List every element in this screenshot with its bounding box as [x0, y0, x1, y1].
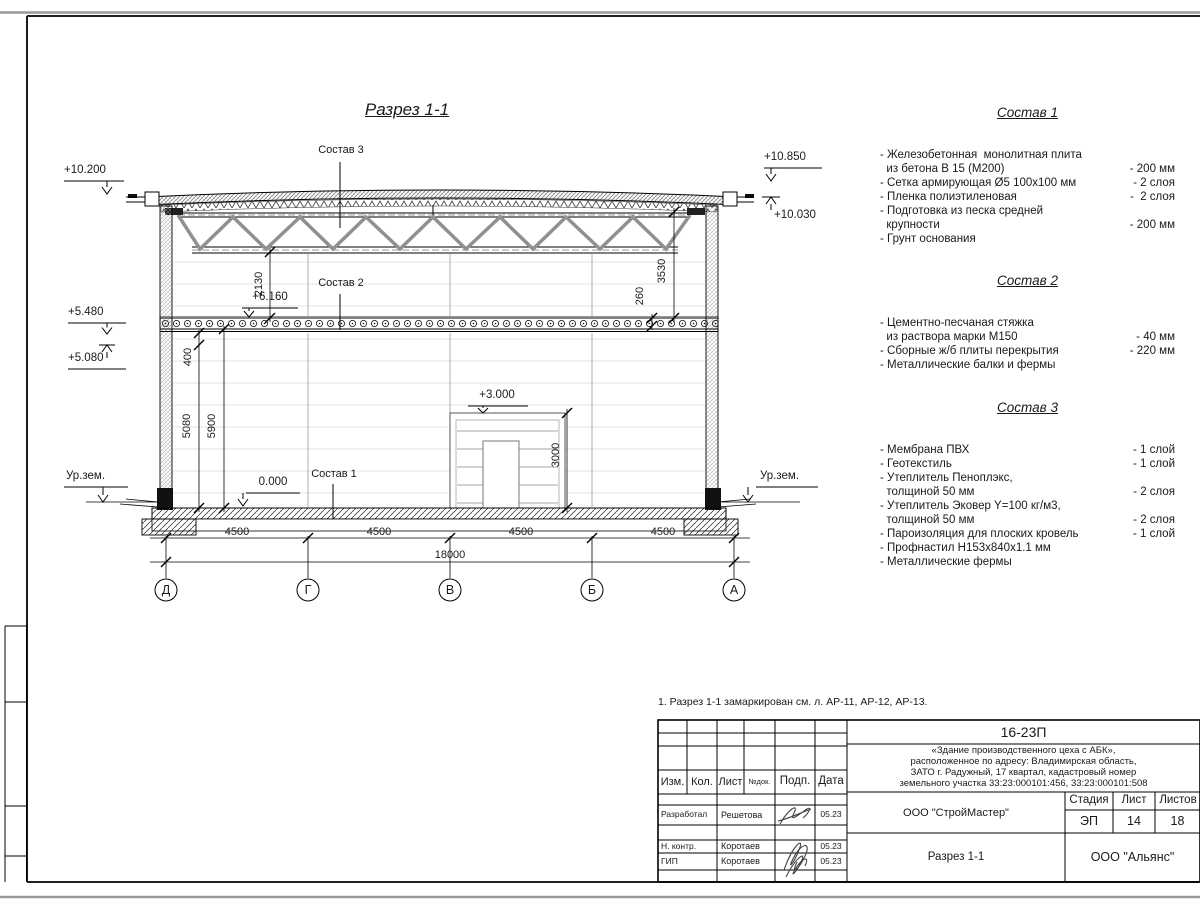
- header-ndok: №док.: [744, 770, 775, 794]
- composition-2-title: Состав 2: [880, 273, 1175, 288]
- drawing-sheet: Разрез 1-1 Состав 3 Состав 2 Состав 1 +1…: [0, 0, 1200, 900]
- composition-item: - Утеплитель Пеноплэкс, толщиной 50 мм -…: [880, 471, 1175, 499]
- axis-label-d: Д: [155, 583, 177, 597]
- row-role: Разработал: [661, 805, 715, 825]
- row-date: 05.23: [815, 805, 847, 825]
- view-title: Разрез 1-1: [327, 100, 487, 120]
- row-role: Н. контр.: [661, 840, 715, 853]
- elevation-slab: +6.160: [242, 291, 298, 303]
- sheet-number: 14: [1113, 810, 1155, 833]
- header-izm: Изм.: [658, 770, 687, 794]
- axis-label-v: В: [439, 583, 461, 597]
- composition-item: - Профнастил Н153х840х1.1 мм: [880, 541, 1175, 555]
- dim-5080: 5080: [181, 396, 193, 456]
- header-sheets-total: Листов: [1155, 792, 1200, 810]
- composition-section-3: Состав 3 - Мембрана ПВХ - 1 слой - Геоте…: [880, 400, 1175, 569]
- row-date: 05.23: [815, 853, 847, 870]
- header-sheet: Лист: [1113, 792, 1155, 810]
- ground-level-right-label: Ур.зем.: [760, 470, 799, 482]
- dim-bay-1: 4500: [207, 526, 267, 538]
- elevation-left-b: +5.080: [68, 352, 104, 364]
- dim-400: 400: [182, 327, 194, 387]
- composition-item: - Железобетонная монолитная плита из бет…: [880, 148, 1175, 176]
- sostav1-ref-label: Состав 1: [305, 468, 363, 480]
- elevation-right-a: +10.030: [774, 209, 816, 221]
- header-podp: Подп.: [775, 770, 815, 794]
- axis-label-a: А: [723, 583, 745, 597]
- ground-level-left-label: Ур.зем.: [66, 470, 105, 482]
- contractor-org: ООО "СтройМастер": [847, 794, 1065, 832]
- company-name: ООО "Альянс": [1065, 833, 1200, 882]
- composition-item: - Сборные ж/б плиты перекрытия - 220 мм: [880, 344, 1175, 358]
- dim-260: 260: [634, 266, 646, 326]
- elevation-right-top: +10.850: [764, 151, 806, 163]
- row-name: Коротаев: [721, 840, 773, 853]
- walls: [157, 206, 721, 510]
- project-description: «Здание производственного цеха с АБК», р…: [852, 745, 1195, 791]
- composition-item: - Утеплитель Эковер Y=100 кг/м3, толщино…: [880, 499, 1175, 527]
- composition-item: - Грунт основания: [880, 232, 1175, 246]
- roof-truss: [165, 205, 705, 253]
- elevation-zero: 0.000: [246, 476, 300, 488]
- composition-item: - Пленка полиэтиленовая - 2 слоя: [880, 190, 1175, 204]
- dim-bay-3: 4500: [491, 526, 551, 538]
- axis-label-g: Г: [297, 583, 319, 597]
- sostav3-ref-label: Состав 3: [312, 144, 370, 156]
- composition-item: - Подготовка из песка средней крупности …: [880, 204, 1175, 232]
- dim-2130: 2130: [253, 254, 265, 314]
- header-kol: Кол.: [687, 770, 717, 794]
- header-list: Лист: [717, 770, 744, 794]
- composition-section-2: Состав 2 - Цементно-песчаная стяжка из р…: [880, 273, 1175, 372]
- composition-3-title: Состав 3: [880, 400, 1175, 415]
- elevation-left-top: +10.200: [64, 164, 106, 176]
- sheets-total: 18: [1155, 810, 1200, 833]
- row-name: Решетова: [721, 805, 773, 825]
- composition-item: - Цементно-песчаная стяжка из раствора м…: [880, 316, 1175, 344]
- drawing-name: Разрез 1-1: [847, 833, 1065, 882]
- roof-slab: [126, 190, 754, 212]
- dim-5900: 5900: [206, 396, 218, 456]
- leader-lines: [333, 162, 340, 519]
- dim-3000: 3000: [550, 425, 562, 485]
- sectional-door: [450, 413, 565, 508]
- elevation-left-a: +5.480: [68, 306, 104, 318]
- dim-bay-4: 4500: [633, 526, 693, 538]
- side-stamp: [5, 626, 27, 882]
- row-role: ГИП: [661, 853, 715, 870]
- sheet-note: 1. Разрез 1-1 замаркирован см. л. АР-11,…: [658, 696, 927, 708]
- signatures: [778, 808, 811, 877]
- stage-value: ЭП: [1065, 810, 1113, 833]
- row-name: Коротаев: [721, 853, 773, 870]
- composition-1-title: Состав 1: [880, 105, 1175, 120]
- dim-3530: 3530: [656, 241, 668, 301]
- composition-item: - Пароизоляция для плоских кровель - 1 с…: [880, 527, 1175, 541]
- composition-item: - Мембрана ПВХ - 1 слой: [880, 443, 1175, 457]
- composition-item: - Металлические фермы: [880, 555, 1175, 569]
- row-date: 05.23: [815, 840, 847, 853]
- elevation-door: +3.000: [466, 389, 528, 401]
- header-data: Дата: [815, 770, 847, 794]
- composition-item: - Сетка армирующая Ø5 100х100 мм - 2 сло…: [880, 176, 1175, 190]
- sostav2-ref-label: Состав 2: [312, 277, 370, 289]
- dim-total: 18000: [420, 549, 480, 561]
- doc-number: 16-23П: [847, 721, 1200, 743]
- dim-bay-2: 4500: [349, 526, 409, 538]
- composition-item: - Металлические балки и фермы: [880, 358, 1175, 372]
- header-stage: Стадия: [1065, 792, 1113, 810]
- axis-label-b: Б: [581, 583, 603, 597]
- composition-section-1: Состав 1 - Железобетонная монолитная пли…: [880, 105, 1175, 246]
- composition-item: - Геотекстиль - 1 слой: [880, 457, 1175, 471]
